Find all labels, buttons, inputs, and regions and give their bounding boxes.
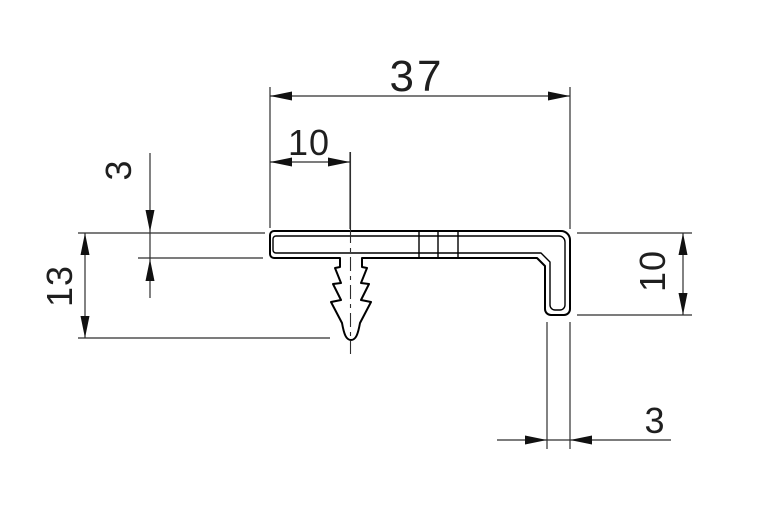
arrowhead-right — [525, 436, 547, 445]
arrowhead-down — [81, 316, 90, 338]
dim-leaf-thickness-label: 3 — [98, 159, 139, 180]
arrowhead-right — [328, 158, 350, 167]
dim-overall-height: 13 — [39, 233, 330, 338]
dim-flange-thickness: 3 — [497, 322, 671, 449]
dim-flange-thickness-label: 3 — [644, 400, 665, 441]
profile-geometry — [270, 231, 570, 340]
profile-outer-contour — [270, 231, 570, 340]
arrowhead-down — [146, 210, 155, 232]
dim-barb-offset: 10 — [270, 122, 350, 229]
arrowhead-up — [81, 233, 90, 255]
arrowhead-left — [570, 436, 592, 445]
technical-drawing-canvas: 37 10 3 13 — [0, 0, 763, 506]
arrowhead-down — [679, 293, 688, 315]
arrowhead-up — [146, 259, 155, 281]
arrowhead-right — [548, 92, 570, 101]
dim-leaf-thickness: 3 — [98, 153, 263, 298]
dim-overall-height-label: 13 — [39, 265, 80, 307]
profile-drawing: 37 10 3 13 — [0, 0, 763, 506]
arrowhead-left — [270, 92, 292, 101]
dim-overall-width-label: 37 — [390, 52, 445, 101]
dim-flange-height: 10 — [577, 233, 692, 315]
dim-barb-offset-label: 10 — [288, 122, 330, 163]
dim-flange-height-label: 10 — [632, 250, 673, 292]
arrowhead-up — [679, 233, 688, 255]
